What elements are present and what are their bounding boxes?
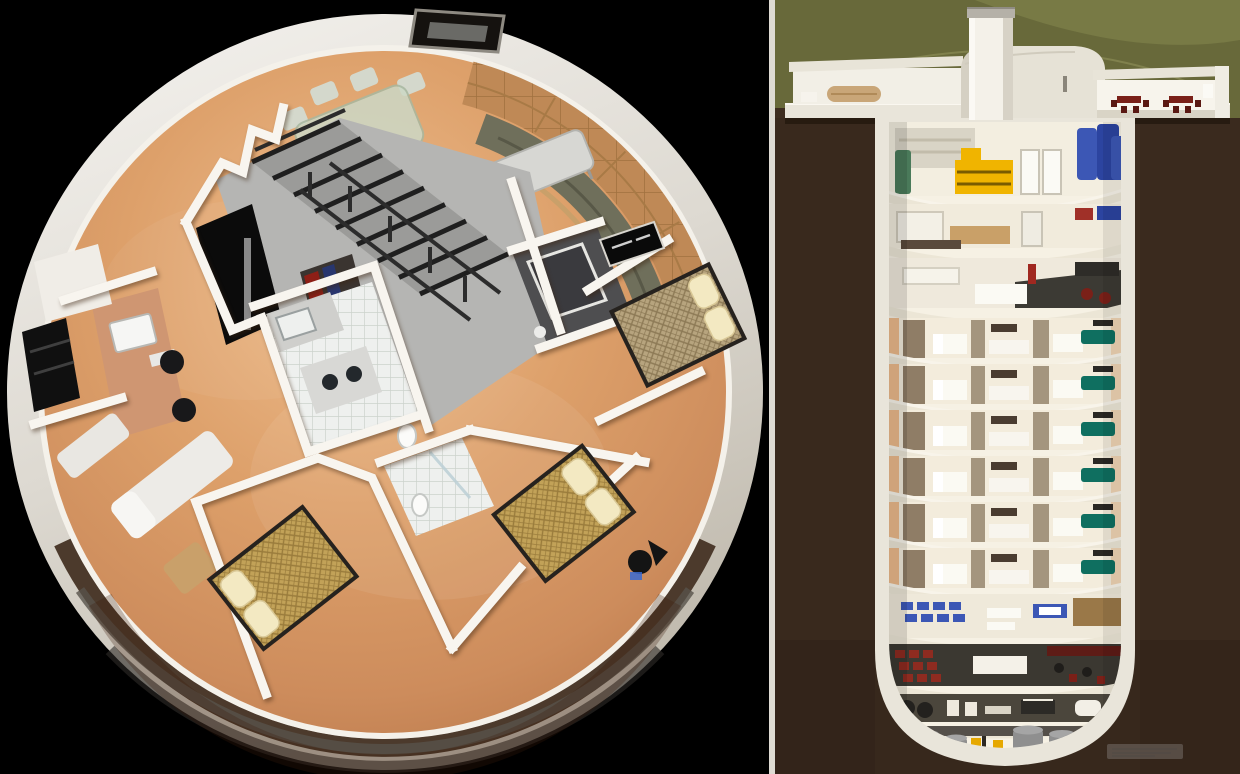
treadmill — [1021, 700, 1055, 714]
yellow-machine — [955, 160, 1013, 194]
dome-floorplan-panel — [0, 0, 769, 774]
door — [1022, 212, 1042, 246]
silo-cross-section-panel — [775, 0, 1240, 774]
surface-room-left — [789, 56, 963, 104]
silo-floors — [887, 122, 1127, 758]
entrance-tower — [967, 8, 1015, 120]
dome-floorplan-render — [0, 0, 769, 774]
kitchen-island — [975, 284, 1027, 304]
tower-cap — [967, 8, 1015, 18]
surface-room-right — [1093, 66, 1229, 118]
silo-cross-section-render — [775, 0, 1240, 774]
recessed-tv-top — [410, 10, 504, 52]
dome-door — [1063, 76, 1067, 92]
blue-object — [630, 572, 642, 580]
desk-chair — [628, 550, 652, 574]
gym-bench — [985, 706, 1011, 714]
watermark — [1107, 744, 1183, 759]
elevator-pole — [244, 238, 251, 330]
toilet — [412, 494, 428, 516]
door — [1043, 150, 1061, 194]
silo-tower — [875, 118, 1135, 766]
screenshot-stage — [0, 0, 1240, 774]
washer-door — [322, 374, 338, 390]
bar-counter — [973, 656, 1027, 674]
toilet — [398, 424, 416, 448]
dryer-door — [346, 366, 362, 382]
bath-sink — [534, 326, 546, 338]
red-accent — [1028, 264, 1036, 284]
office-chair — [172, 398, 196, 422]
red-box — [1075, 208, 1093, 220]
door — [1021, 150, 1039, 194]
blue-tank — [1077, 128, 1097, 180]
office-chair — [160, 350, 184, 374]
